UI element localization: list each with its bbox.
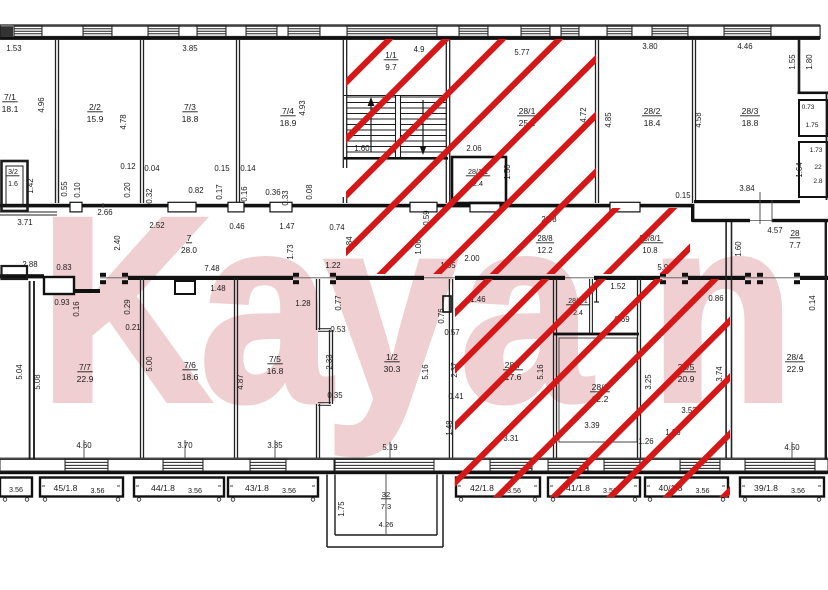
svg-text:3.80: 3.80 — [642, 42, 658, 51]
svg-text:0.21: 0.21 — [125, 323, 140, 332]
svg-text:18.4: 18.4 — [644, 118, 661, 128]
svg-text:1.48: 1.48 — [210, 284, 225, 293]
svg-text:0.83: 0.83 — [56, 263, 71, 272]
svg-text:0.17: 0.17 — [215, 184, 224, 199]
svg-text:2.33: 2.33 — [325, 354, 334, 369]
svg-text:1.73: 1.73 — [810, 147, 823, 154]
svg-text:1.73: 1.73 — [286, 244, 295, 259]
svg-text:1.55: 1.55 — [788, 54, 797, 70]
svg-text:4.78: 4.78 — [119, 114, 128, 129]
svg-text:4.93: 4.93 — [298, 100, 307, 115]
svg-text:0.35: 0.35 — [327, 391, 343, 400]
svg-text:0.14: 0.14 — [240, 164, 256, 173]
svg-text:45/1.8: 45/1.8 — [54, 483, 78, 493]
svg-text:39/1.8: 39/1.8 — [754, 483, 778, 493]
svg-text:22: 22 — [814, 164, 822, 171]
svg-text:1.6: 1.6 — [8, 181, 18, 188]
svg-text:0.53: 0.53 — [330, 325, 345, 334]
svg-text:2.52: 2.52 — [149, 221, 164, 230]
svg-text:7.7: 7.7 — [789, 241, 801, 250]
svg-text:28/4: 28/4 — [787, 352, 804, 362]
svg-text:3.56: 3.56 — [791, 486, 805, 495]
svg-text:1.48: 1.48 — [445, 420, 454, 435]
svg-text:1.64: 1.64 — [795, 162, 804, 178]
svg-text:0.10: 0.10 — [73, 182, 82, 198]
svg-text:4.46: 4.46 — [737, 42, 752, 51]
svg-text:3.85: 3.85 — [182, 44, 198, 53]
svg-text:1.75: 1.75 — [337, 501, 346, 517]
svg-text:4.87: 4.87 — [236, 374, 245, 389]
svg-text:0.32: 0.32 — [145, 188, 154, 203]
svg-text:16.8: 16.8 — [267, 366, 284, 376]
svg-text:0.33: 0.33 — [281, 190, 290, 205]
svg-text:0.82: 0.82 — [188, 186, 203, 195]
svg-text:18.6: 18.6 — [182, 372, 199, 382]
svg-text:1.22: 1.22 — [325, 261, 340, 270]
svg-text:44/1.8: 44/1.8 — [151, 483, 175, 493]
svg-text:0.74: 0.74 — [329, 223, 345, 232]
svg-text:0.15: 0.15 — [675, 191, 691, 200]
svg-text:2.8: 2.8 — [813, 178, 822, 185]
svg-text:7/4: 7/4 — [282, 106, 294, 116]
svg-text:1.53: 1.53 — [6, 44, 21, 53]
svg-text:1.80: 1.80 — [805, 54, 814, 70]
svg-text:28/3: 28/3 — [742, 106, 759, 116]
svg-text:3.56: 3.56 — [188, 486, 202, 495]
svg-text:1.47: 1.47 — [279, 222, 294, 231]
svg-text:5.00: 5.00 — [145, 356, 154, 372]
svg-text:2.40: 2.40 — [113, 235, 122, 251]
svg-text:7/1: 7/1 — [4, 92, 16, 102]
svg-text:3/2: 3/2 — [8, 169, 18, 176]
svg-text:0.12: 0.12 — [120, 162, 135, 171]
svg-text:1.75: 1.75 — [806, 122, 819, 129]
svg-text:28: 28 — [790, 229, 800, 238]
svg-text:4.58: 4.58 — [694, 112, 703, 127]
svg-text:0.73: 0.73 — [802, 104, 815, 111]
svg-text:22.9: 22.9 — [77, 374, 94, 384]
svg-text:7/7: 7/7 — [79, 362, 91, 372]
svg-text:4.85: 4.85 — [604, 112, 613, 128]
svg-text:2/2: 2/2 — [89, 102, 101, 112]
svg-text:3.84: 3.84 — [739, 184, 755, 193]
svg-text:0.77: 0.77 — [334, 295, 343, 310]
svg-text:2.66: 2.66 — [97, 208, 112, 217]
svg-text:0.16: 0.16 — [72, 301, 81, 316]
svg-text:0.15: 0.15 — [214, 164, 230, 173]
svg-text:7: 7 — [187, 234, 192, 243]
svg-text:18.1: 18.1 — [2, 104, 19, 114]
svg-text:28.0: 28.0 — [181, 246, 197, 255]
svg-text:28/2: 28/2 — [644, 106, 661, 116]
svg-text:0.14: 0.14 — [808, 295, 817, 311]
svg-text:1.42: 1.42 — [26, 178, 35, 193]
svg-text:0.55: 0.55 — [60, 181, 69, 197]
svg-text:5.16: 5.16 — [421, 364, 430, 379]
svg-text:5.08: 5.08 — [33, 374, 42, 389]
svg-text:0.20: 0.20 — [123, 182, 132, 198]
svg-text:4.96: 4.96 — [37, 97, 46, 112]
svg-text:22.9: 22.9 — [787, 364, 804, 374]
svg-text:3.56: 3.56 — [9, 485, 23, 494]
svg-text:7.48: 7.48 — [204, 264, 219, 273]
svg-text:0.93: 0.93 — [54, 298, 69, 307]
svg-text:30.3: 30.3 — [384, 364, 401, 374]
svg-text:18.8: 18.8 — [182, 114, 199, 124]
svg-text:1/2: 1/2 — [386, 352, 398, 362]
svg-text:2.88: 2.88 — [22, 260, 37, 269]
svg-text:7/5: 7/5 — [269, 354, 281, 364]
svg-text:0.46: 0.46 — [229, 222, 244, 231]
svg-text:18.9: 18.9 — [280, 118, 297, 128]
svg-text:0.36: 0.36 — [265, 188, 280, 197]
svg-text:3.71: 3.71 — [17, 218, 32, 227]
svg-text:0.29: 0.29 — [123, 299, 132, 314]
svg-text:7/6: 7/6 — [184, 360, 196, 370]
svg-text:0.08: 0.08 — [305, 184, 314, 199]
svg-text:1.60: 1.60 — [734, 241, 743, 257]
svg-text:18.8: 18.8 — [742, 118, 759, 128]
svg-text:3.56: 3.56 — [91, 486, 105, 495]
svg-text:0.16: 0.16 — [240, 186, 249, 201]
svg-text:0.76: 0.76 — [437, 308, 446, 323]
svg-text:3.56: 3.56 — [282, 486, 296, 495]
svg-text:5.04: 5.04 — [15, 364, 24, 380]
svg-text:4.57: 4.57 — [767, 226, 782, 235]
svg-text:0.04: 0.04 — [144, 164, 160, 173]
svg-text:43/1.8: 43/1.8 — [245, 483, 269, 493]
svg-text:7/3: 7/3 — [184, 102, 196, 112]
svg-text:15.9: 15.9 — [87, 114, 104, 124]
svg-text:1.28: 1.28 — [295, 299, 310, 308]
